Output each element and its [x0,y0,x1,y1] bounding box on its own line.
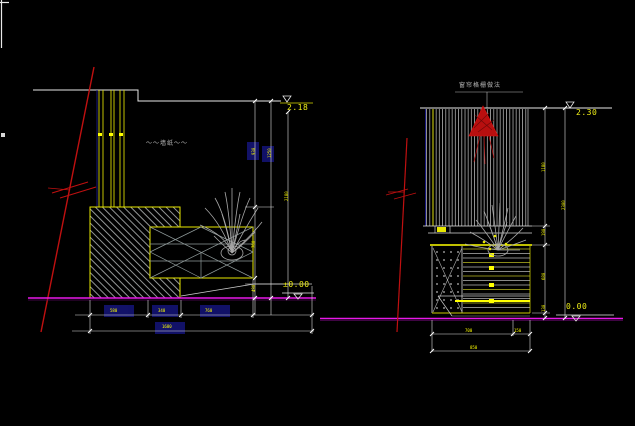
dim-label: 680 [542,273,546,280]
dim-label: 340 [158,309,165,313]
shelf-bracket [428,226,532,233]
left-level-top-value: 2.18 [287,104,308,112]
cad-linework [0,0,635,426]
ceiling-outline [33,90,281,101]
level-mark-top [280,96,313,103]
dim-label: 1250 [268,148,272,158]
curtain-columns [97,90,124,207]
dim-label: 1180 [542,162,546,172]
dim-label: 2300 [562,200,566,210]
dim-label: 2180 [285,191,289,201]
left-elevation [28,67,316,334]
dim-label: 930 [252,148,256,155]
cad-drawing-canvas[interactable]: 2.18 ±0.00 〜〜墙纸〜〜 580 340 760 1680 930 7… [0,0,635,426]
sheet-edge-mark [1,133,5,137]
cabinet [432,246,530,313]
top-note-leader [455,92,523,108]
dim-label: 1680 [162,325,172,329]
dim-label: 490 [252,285,256,292]
right-level-top-value: 2.30 [576,109,597,117]
level-mark-top [566,102,574,108]
right-level-bottom-value: 0.00 [566,303,587,311]
left-level-bottom-value: ±0.00 [283,281,310,289]
floor-line [28,298,316,300]
dim-label: 130 [542,305,546,312]
right-elevation [320,92,623,353]
dim-label: 150 [514,329,521,333]
drawer-handles [489,253,494,303]
section-cut-line [41,67,96,332]
dim-label: 580 [110,309,117,313]
dim-label: 700 [465,329,472,333]
right-top-note: 窗帘格栅做法 [459,83,501,89]
right-dimension-lines [532,106,567,320]
dim-label: 760 [252,241,256,248]
drawer-slats [463,249,530,308]
dim-label: 850 [470,346,477,350]
dim-label: 190 [542,229,546,236]
mirror-panel [150,227,253,278]
dim-label: 760 [205,309,212,313]
left-wall-note: 〜〜墙纸〜〜 [146,141,188,147]
sheet-corner-mark [0,0,9,48]
bottom-dimension-lines [430,320,532,353]
section-cut-line [386,138,416,332]
